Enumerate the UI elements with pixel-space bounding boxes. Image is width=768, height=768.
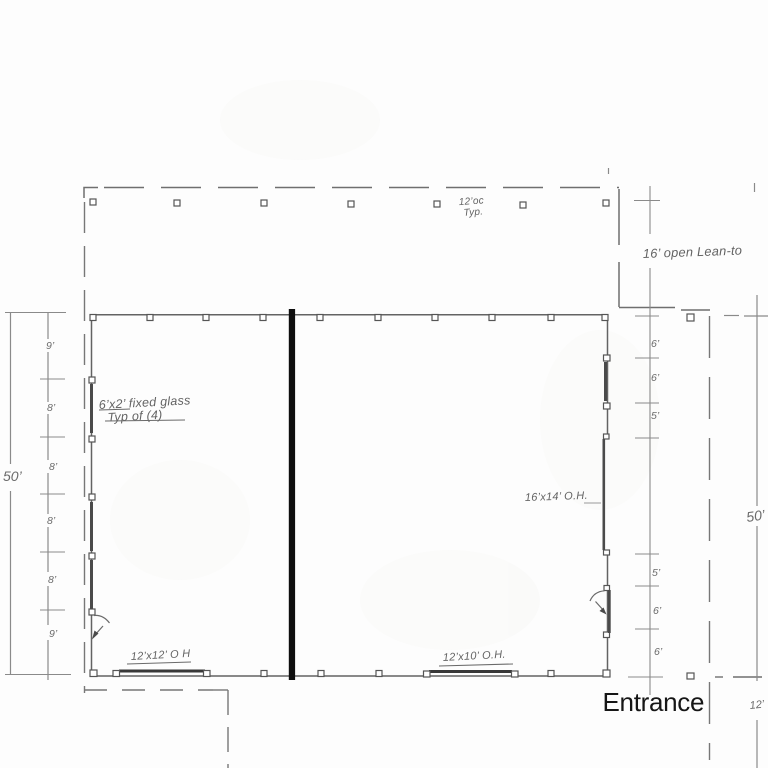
svg-text:50’: 50’ xyxy=(745,506,767,525)
svg-text:Entrance: Entrance xyxy=(603,687,705,717)
svg-text:12’: 12’ xyxy=(749,698,765,712)
svg-text:8’: 8’ xyxy=(47,515,56,527)
svg-text:9’: 9’ xyxy=(46,340,55,352)
svg-text:6’: 6’ xyxy=(653,605,662,617)
svg-text:6’: 6’ xyxy=(651,372,660,384)
svg-text:16’x14’ O.H.: 16’x14’ O.H. xyxy=(525,490,588,504)
svg-text:Typ of (4): Typ of (4) xyxy=(107,408,163,425)
svg-text:5’: 5’ xyxy=(651,410,660,422)
svg-text:Typ.: Typ. xyxy=(463,206,483,218)
svg-text:9’: 9’ xyxy=(49,628,58,640)
svg-text:8’: 8’ xyxy=(47,402,56,414)
svg-text:5’: 5’ xyxy=(652,567,661,579)
svg-text:6’: 6’ xyxy=(654,646,663,658)
svg-text:50’: 50’ xyxy=(3,468,23,484)
svg-text:8’: 8’ xyxy=(49,461,58,473)
svg-text:6’: 6’ xyxy=(651,338,660,350)
svg-text:8’: 8’ xyxy=(48,574,57,586)
